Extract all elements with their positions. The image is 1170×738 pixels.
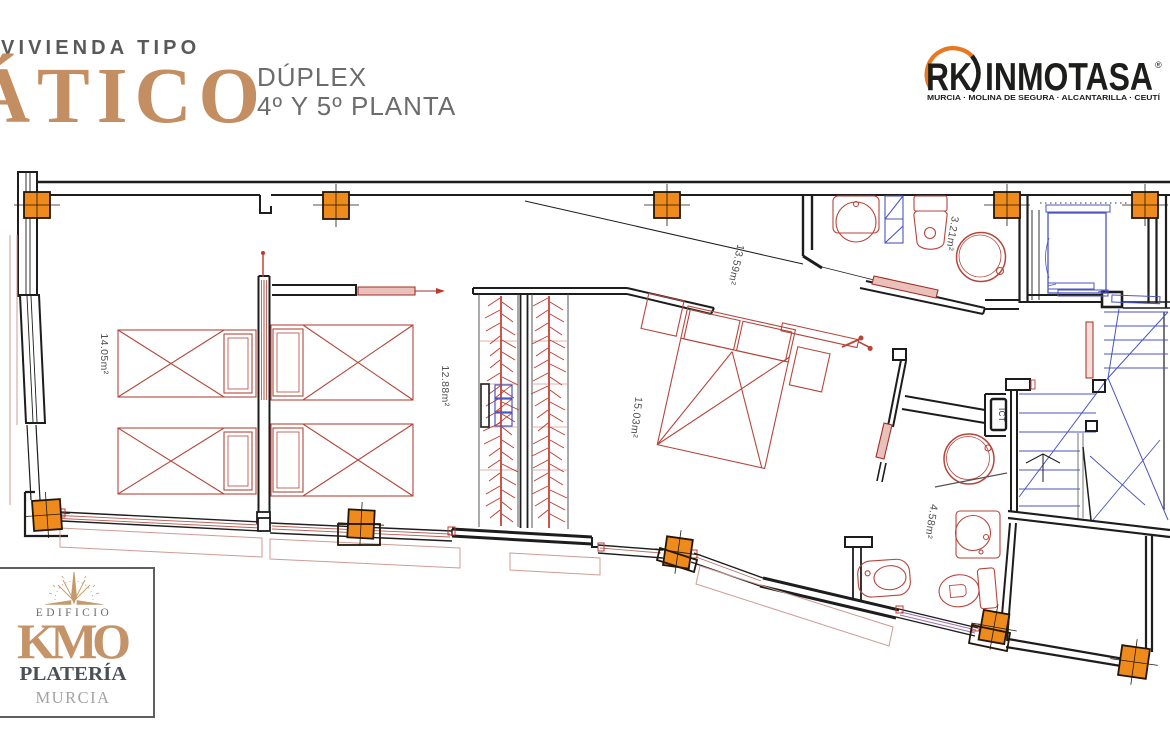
svg-text:MURCIA · MOLINA DE SEGURA · AL: MURCIA · MOLINA DE SEGURA · ALCANTARILLA…	[927, 93, 1161, 102]
svg-text:ICT: ICT	[997, 408, 1006, 422]
svg-text:4.58m²: 4.58m²	[922, 503, 940, 540]
svg-text:®: ®	[1155, 60, 1162, 70]
svg-text:MURCIA: MURCIA	[35, 688, 110, 707]
svg-text:KMO: KMO	[17, 613, 131, 669]
svg-text:INMOTASA: INMOTASA	[985, 56, 1153, 99]
svg-text:PLATERÍA: PLATERÍA	[20, 663, 127, 685]
svg-text:13.59m²: 13.59m²	[725, 243, 746, 286]
svg-text:RK: RK	[926, 56, 972, 99]
svg-text:15.03m²: 15.03m²	[627, 396, 644, 439]
svg-text:14.05m²: 14.05m²	[98, 333, 110, 374]
svg-text:12.88m²: 12.88m²	[439, 365, 451, 406]
